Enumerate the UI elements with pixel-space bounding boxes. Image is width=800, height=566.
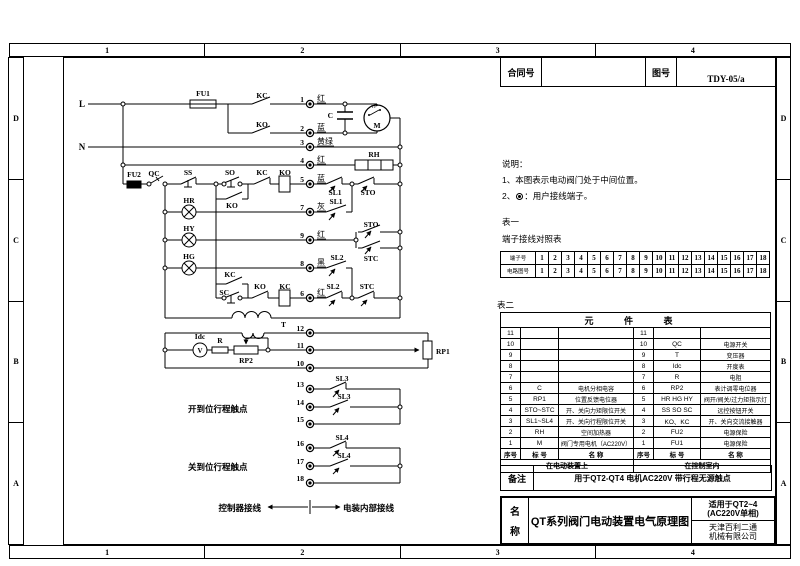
row-header: 电路图号 xyxy=(501,265,536,277)
zone-row-label: A xyxy=(9,423,23,544)
zone-col-label: 2 xyxy=(205,44,400,56)
title-block: 名称 QT系列阀门电动装置电气原理图 适用于QT2~4(AC220V单相) 天津… xyxy=(500,496,776,545)
ref-cell: Idc xyxy=(654,361,701,372)
zone-row-label: C xyxy=(777,180,790,302)
drawing-no-label: 图号 xyxy=(646,58,677,86)
ref-cell xyxy=(521,372,559,383)
seq-cell: 9 xyxy=(634,350,654,361)
name-cell: 开、关向力矩限位开关 xyxy=(559,405,634,416)
terminal-no-cell: 10 xyxy=(653,252,666,265)
name-cell xyxy=(559,350,634,361)
contract-no-label: 合同号 xyxy=(501,58,542,86)
seq-cell: 7 xyxy=(501,372,521,383)
circuit-no-cell: 4 xyxy=(575,265,588,277)
terminal-no-cell: 18 xyxy=(757,252,769,265)
zone-col-label: 4 xyxy=(596,44,790,56)
zone-band-top: 1 2 3 4 xyxy=(9,43,791,57)
ref-cell: QC xyxy=(654,339,701,350)
circuit-no-cell: 3 xyxy=(562,265,575,277)
zone-row-label: D xyxy=(777,58,790,180)
element-table-row: 1 M 阀门专用电机（AC220V） 1 FU1 电源保险 xyxy=(501,438,771,449)
company-cell: 天津百利二通机械有限公司 xyxy=(692,521,774,543)
seq-cell: 11 xyxy=(634,328,654,339)
name-cell: 开度表 xyxy=(701,361,771,372)
remark-box: 备注 用于QT2-QT4 电机AC220V 带行程无源触点 xyxy=(500,465,772,491)
terminal-no-cell: 6 xyxy=(601,252,614,265)
name-cell: 电阻 xyxy=(701,372,771,383)
name-cell: 阀开/阀关/过力矩指示灯 xyxy=(701,394,771,405)
name-cell: 远控按钮开关 xyxy=(701,405,771,416)
circuit-no-cell: 5 xyxy=(588,265,601,277)
seq-cell: 10 xyxy=(634,339,654,350)
ref-cell: FU1 xyxy=(654,438,701,449)
name-cell xyxy=(559,328,634,339)
terminal-table-row: 电路图号 123456789101112131415161718 xyxy=(501,265,769,277)
ref-cell: RP1 xyxy=(521,394,559,405)
seq-cell: 11 xyxy=(501,328,521,339)
circuit-no-cell: 8 xyxy=(627,265,640,277)
circuit-no-cell: 13 xyxy=(692,265,705,277)
terminal-no-cell: 9 xyxy=(640,252,653,265)
zone-band-bottom: 1 2 3 4 xyxy=(9,545,791,559)
ref-cell: STO~STC xyxy=(521,405,559,416)
seq-cell: 9 xyxy=(501,350,521,361)
ref-cell xyxy=(521,361,559,372)
seq-cell: 8 xyxy=(501,361,521,372)
terminal-table-row: 端子号 123456789101112131415161718 xyxy=(501,252,769,265)
notes-title: 说明： xyxy=(502,156,772,172)
name-cell: 电机分相电容 xyxy=(559,383,634,394)
name-cell xyxy=(559,372,634,383)
terminal-no-cell: 8 xyxy=(627,252,640,265)
element-table-row: 5 RP1 位置反馈电位器 5 HR HG HY 阀开/阀关/过力矩指示灯 xyxy=(501,394,771,405)
element-table-title: 元 件 表 xyxy=(501,313,771,328)
circuit-no-cell: 1 xyxy=(536,265,549,277)
circuit-no-cell: 15 xyxy=(718,265,731,277)
zone-row-label: A xyxy=(777,423,790,544)
name-cell: 阀门专用电机（AC220V） xyxy=(559,438,634,449)
row-header: 端子号 xyxy=(501,252,536,265)
zone-band-left: D C B A xyxy=(8,57,24,545)
seq-cell: 6 xyxy=(501,383,521,394)
seq-cell: 5 xyxy=(634,394,654,405)
remark-label: 备注 xyxy=(501,466,534,490)
note-item-1: 1、本图表示电动阀门处于中间位置。 xyxy=(502,172,772,188)
zone-col-label: 3 xyxy=(401,546,596,558)
terminal-no-cell: 15 xyxy=(718,252,731,265)
name-cell: 开、关向交流接触器 xyxy=(701,416,771,427)
element-table-row: 7 7 R 电阻 xyxy=(501,372,771,383)
name-cell: 表计调零电位器 xyxy=(701,383,771,394)
contract-no-value xyxy=(542,58,646,86)
zone-col-label: 1 xyxy=(10,546,205,558)
drawing-no-value: TDY-05/a xyxy=(707,73,744,87)
terminal-no-cell: 14 xyxy=(705,252,718,265)
ref-cell: M xyxy=(521,438,559,449)
applicability-cell: 适用于QT2~4(AC220V单相) xyxy=(692,498,774,521)
terminal-no-cell: 13 xyxy=(692,252,705,265)
element-table-row: 11 11 xyxy=(501,328,771,339)
name-cell: 电源保险 xyxy=(701,438,771,449)
name-cell: 空间加热器 xyxy=(559,427,634,438)
seq-cell: 5 xyxy=(501,394,521,405)
table1-subtitle: 端子接线对照表 xyxy=(502,233,562,245)
ref-cell: SL1~SL4 xyxy=(521,416,559,427)
zone-col-label: 1 xyxy=(10,44,205,56)
table1-caption: 表一 xyxy=(502,216,519,228)
zone-row-label: C xyxy=(9,180,23,302)
zone-col-label: 3 xyxy=(401,44,596,56)
circuit-no-cell: 9 xyxy=(640,265,653,277)
circuit-no-cell: 2 xyxy=(549,265,562,277)
terminal-no-cell: 4 xyxy=(575,252,588,265)
terminal-no-cell: 1 xyxy=(536,252,549,265)
element-table-row: 8 8 Idc 开度表 xyxy=(501,361,771,372)
name-cell xyxy=(559,361,634,372)
terminal-no-cell: 5 xyxy=(588,252,601,265)
name-cell: 开、关向行程限位开关 xyxy=(559,416,634,427)
zone-col-label: 2 xyxy=(205,546,400,558)
seq-cell: 10 xyxy=(501,339,521,350)
terminal-table: 端子号 123456789101112131415161718 电路图号 123… xyxy=(500,251,770,278)
seq-cell: 7 xyxy=(634,372,654,383)
drawing-no-cell: TDY-05/a xyxy=(677,58,775,86)
element-table-row: 9 9 T 变压器 xyxy=(501,350,771,361)
name-cell: 变压器 xyxy=(701,350,771,361)
ref-cell: SS SO SC xyxy=(654,405,701,416)
name-cell: 电源保险 xyxy=(701,427,771,438)
name-cell xyxy=(701,328,771,339)
seq-cell: 3 xyxy=(634,416,654,427)
terminal-symbol-icon xyxy=(516,193,523,200)
element-table-row: 3 SL1~SL4 开、关向行程限位开关 3 KO、KC 开、关向交流接触器 xyxy=(501,416,771,427)
notes-block: 说明： 1、本图表示电动阀门处于中间位置。 2、：用户接线端子。 xyxy=(502,156,772,204)
element-table-row: 6 C 电机分相电容 6 RP2 表计调零电位器 xyxy=(501,383,771,394)
ref-cell xyxy=(521,328,559,339)
seq-cell: 8 xyxy=(634,361,654,372)
circuit-no-cell: 17 xyxy=(744,265,757,277)
name-cell: 电源开关 xyxy=(701,339,771,350)
seq-cell: 4 xyxy=(634,405,654,416)
circuit-no-cell: 14 xyxy=(705,265,718,277)
terminal-no-cell: 17 xyxy=(744,252,757,265)
terminal-no-cell: 2 xyxy=(549,252,562,265)
ref-cell: T xyxy=(654,350,701,361)
circuit-no-cell: 18 xyxy=(757,265,769,277)
terminal-no-cell: 16 xyxy=(731,252,744,265)
name-cell: 位置反馈电位器 xyxy=(559,394,634,405)
circuit-no-cell: 16 xyxy=(731,265,744,277)
seq-cell: 1 xyxy=(634,438,654,449)
table2-caption: 表二 xyxy=(497,299,514,311)
seq-cell: 2 xyxy=(634,427,654,438)
ref-cell: RH xyxy=(521,427,559,438)
ref-cell: KO、KC xyxy=(654,416,701,427)
name-label: 名称 xyxy=(502,498,529,543)
circuit-no-cell: 7 xyxy=(614,265,627,277)
zone-col-label: 4 xyxy=(596,546,790,558)
seq-cell: 4 xyxy=(501,405,521,416)
circuit-no-cell: 12 xyxy=(679,265,692,277)
ref-cell xyxy=(521,339,559,350)
zone-row-label: B xyxy=(9,302,23,424)
drawing-title: QT系列阀门电动装置电气原理图 xyxy=(529,498,692,543)
remark-text: 用于QT2-QT4 电机AC220V 带行程无源触点 xyxy=(534,466,771,490)
terminal-no-cell: 12 xyxy=(679,252,692,265)
element-table-header-row: 序号标 号名 称 序号标 号名 称 xyxy=(501,449,771,460)
zone-row-label: D xyxy=(9,58,23,180)
seq-cell: 2 xyxy=(501,427,521,438)
circuit-no-cell: 11 xyxy=(666,265,679,277)
zone-row-label: B xyxy=(777,302,790,424)
drawing-number-box: 合同号 图号 TDY-05/a xyxy=(500,57,776,87)
element-table-row: 10 10 QC 电源开关 xyxy=(501,339,771,350)
seq-cell: 6 xyxy=(634,383,654,394)
name-cell xyxy=(559,339,634,350)
note-item-2: 2、：用户接线端子。 xyxy=(502,188,772,204)
ref-cell: HR HG HY xyxy=(654,394,701,405)
ref-cell: FU2 xyxy=(654,427,701,438)
ref-cell: C xyxy=(521,383,559,394)
drawing-sheet: L N FU1 KC KO C TP M RH FU2 QC SS SO KO … xyxy=(0,0,800,566)
ref-cell: RP2 xyxy=(654,383,701,394)
ref-cell xyxy=(654,328,701,339)
ref-cell: R xyxy=(654,372,701,383)
terminal-no-cell: 11 xyxy=(666,252,679,265)
circuit-no-cell: 10 xyxy=(653,265,666,277)
element-table-row: 4 STO~STC 开、关向力矩限位开关 4 SS SO SC 远控按钮开关 xyxy=(501,405,771,416)
terminal-no-cell: 3 xyxy=(562,252,575,265)
terminal-no-cell: 7 xyxy=(614,252,627,265)
element-table-row: 2 RH 空间加热器 2 FU2 电源保险 xyxy=(501,427,771,438)
seq-cell: 3 xyxy=(501,416,521,427)
ref-cell xyxy=(521,350,559,361)
zone-band-right: D C B A xyxy=(776,57,791,545)
element-table: 元 件 表 11 11 10 10 QC 电源开关 9 xyxy=(500,312,771,473)
seq-cell: 1 xyxy=(501,438,521,449)
circuit-no-cell: 6 xyxy=(601,265,614,277)
